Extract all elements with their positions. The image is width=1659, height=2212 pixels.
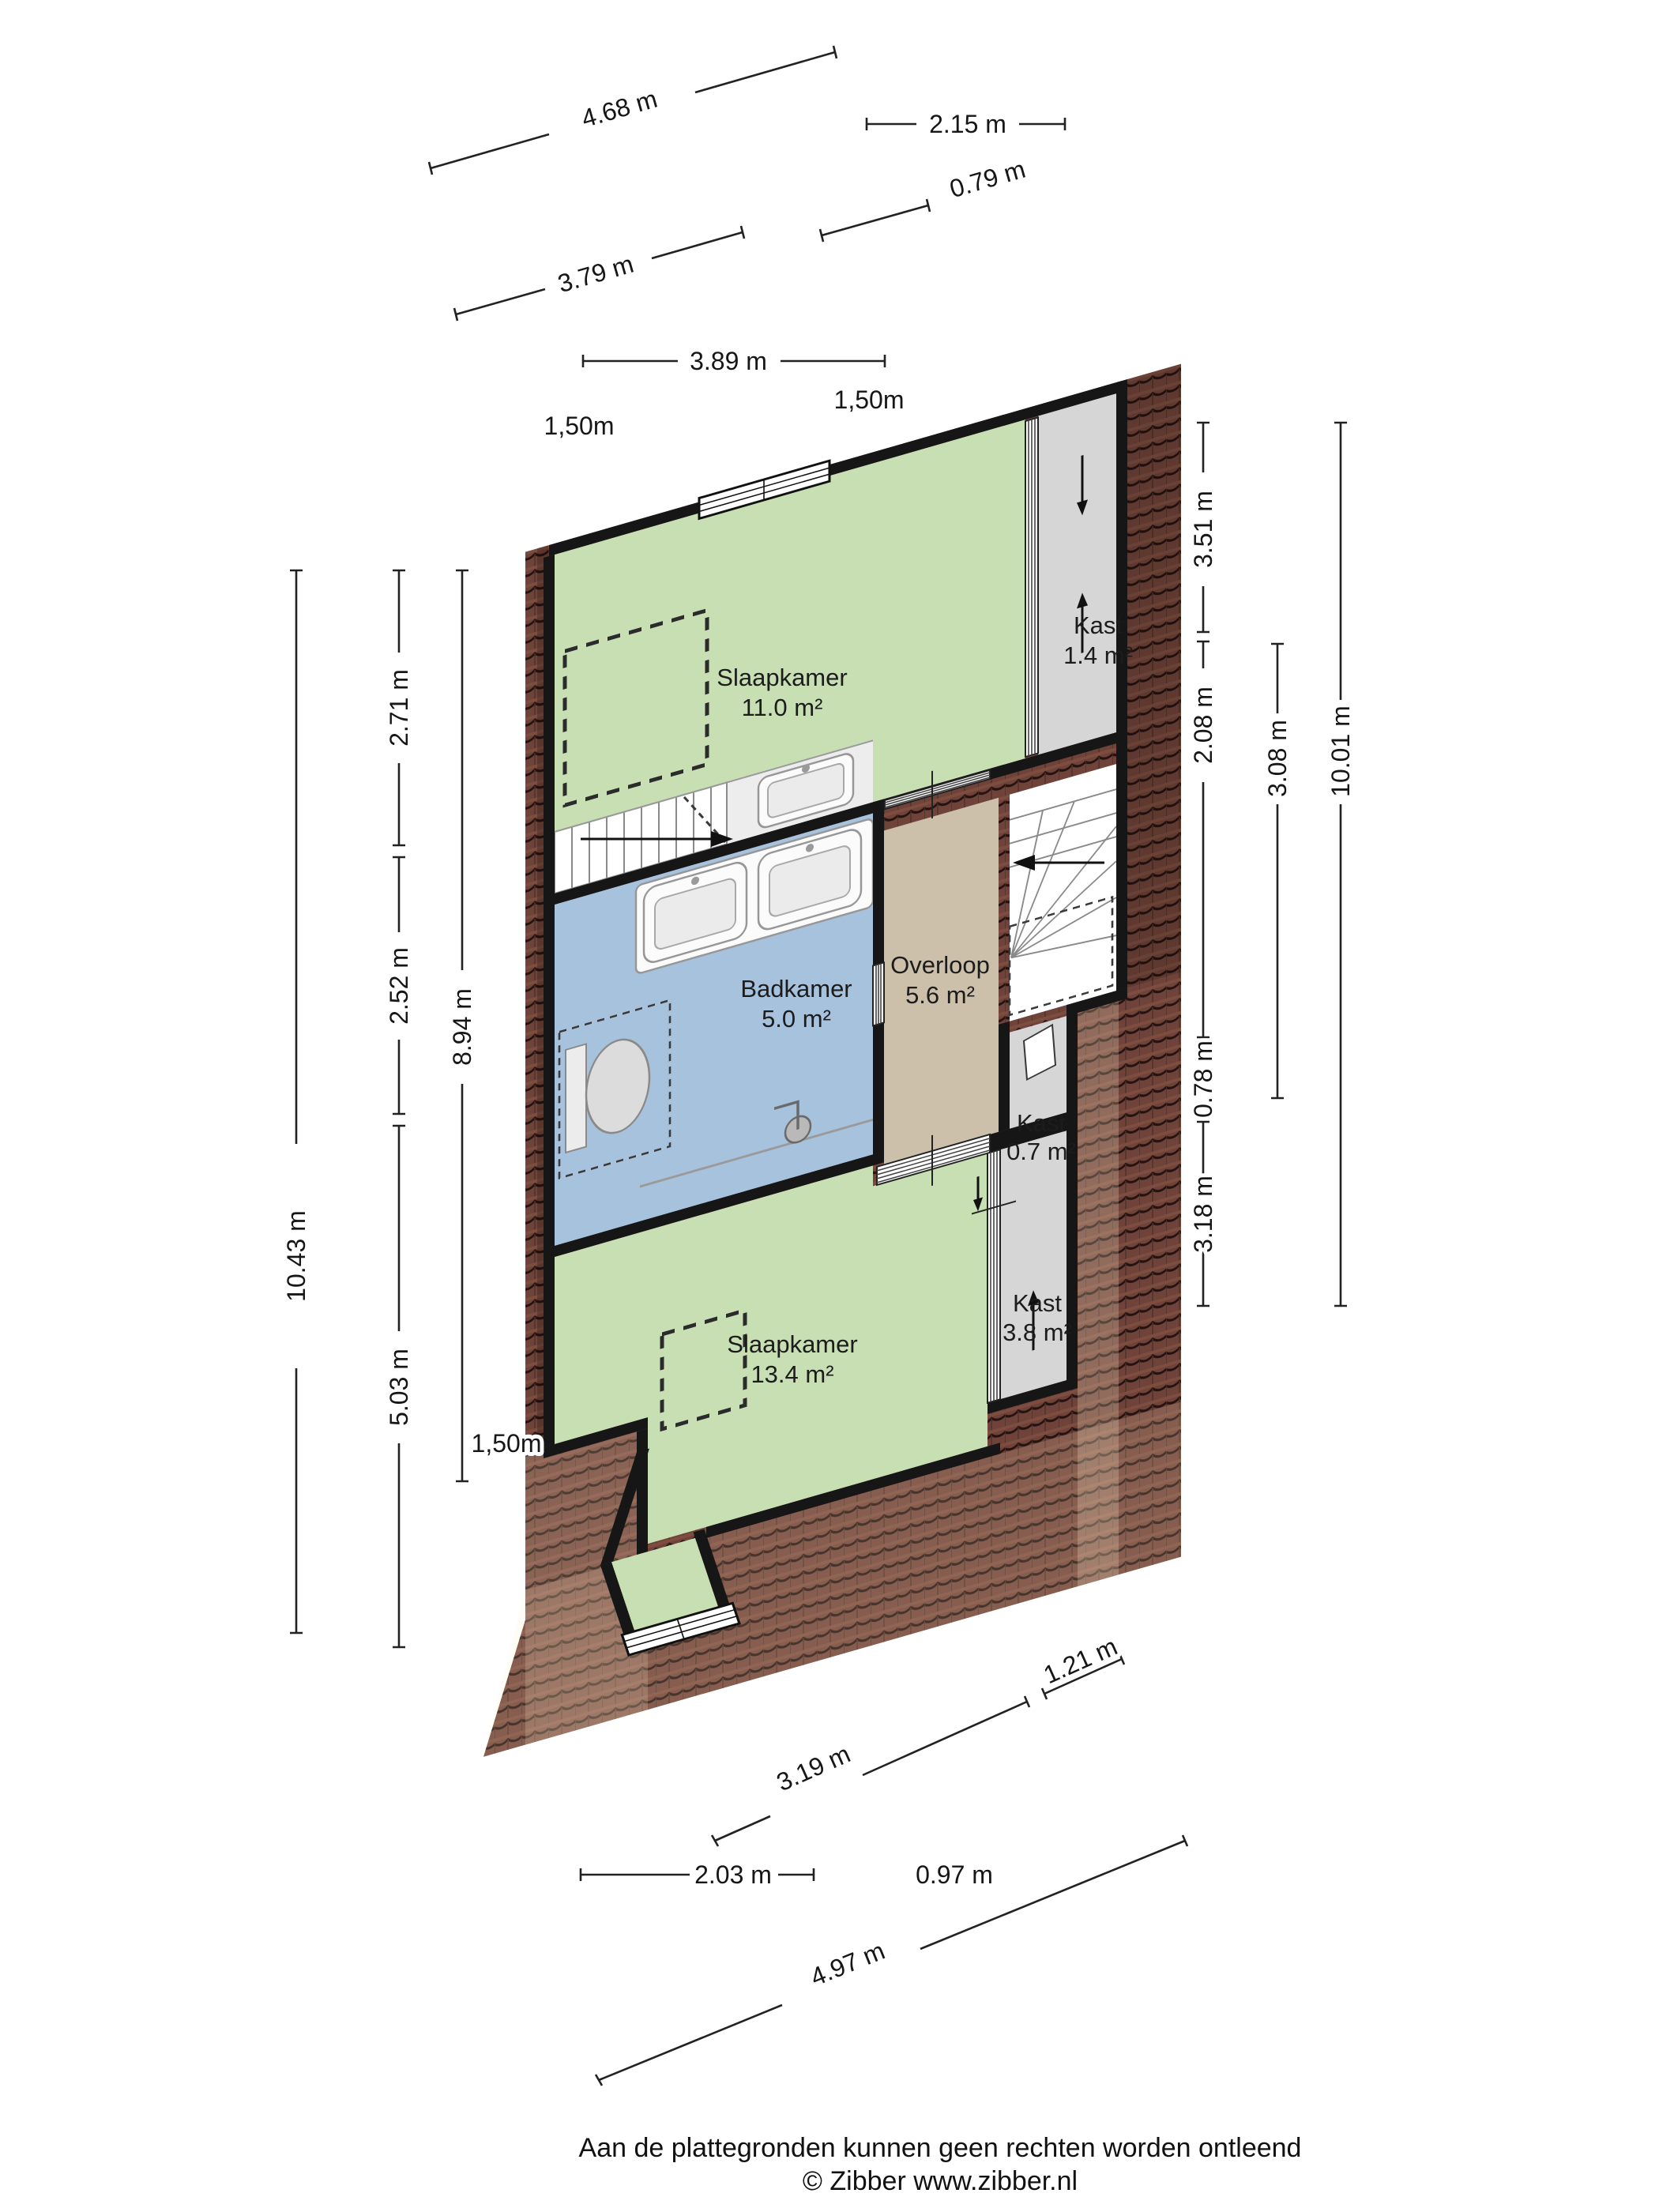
dim-right-3-51: 3.51 m <box>1189 491 1217 568</box>
dim-right-3-18: 3.18 m <box>1189 1176 1217 1253</box>
height-marker-left: 1,50m <box>544 412 615 440</box>
label-slaapkamer-1-area: 11.0 m² <box>742 694 823 721</box>
dim-right-2-08: 2.08 m <box>1189 687 1217 764</box>
roof-shade-right <box>1127 364 1181 987</box>
dim-right-3-08: 3.08 m <box>1263 720 1292 797</box>
dim-left-10-43: 10.43 m <box>282 1210 310 1302</box>
dim-right-0-78: 0.78 m <box>1189 1040 1217 1118</box>
label-badkamer-name: Badkamer <box>740 975 852 1003</box>
dimensions-right: 3.51 m 2.08 m 0.78 m 3.18 m 3.08 m 10.01… <box>1189 423 1355 1306</box>
wall-left-lower <box>637 1428 648 1555</box>
label-kast-2-area: 0.7 m² <box>1006 1138 1076 1165</box>
dimensions-top: 4.68 m 2.15 m 0.79 m 3.79 m 3.89 m <box>429 46 1065 375</box>
label-badkamer-area: 5.0 m² <box>762 1005 831 1033</box>
dim-top-4-68: 4.68 m <box>578 85 660 134</box>
door-kast-1 <box>1025 417 1038 757</box>
label-kast-1-area: 1.4 m² <box>1063 641 1133 669</box>
dim-top-3-79: 3.79 m <box>555 250 637 299</box>
label-kast-3-name: Kast <box>1013 1289 1062 1317</box>
room-kast-3 <box>1000 1130 1066 1399</box>
footer-disclaimer: Aan de plattegronden kunnen geen rechten… <box>579 2133 1302 2163</box>
footer-copyright: © Zibber www.zibber.nl <box>803 2166 1078 2196</box>
label-kast-1-name: Kast <box>1074 611 1123 639</box>
dim-top-0-79: 0.79 m <box>946 155 1029 204</box>
label-slaapkamer-2-area: 13.4 m² <box>750 1360 833 1388</box>
room-kast-1 <box>1038 393 1116 754</box>
dim-left-8-94: 8.94 m <box>448 988 476 1066</box>
dim-bottom-4-97: 4.97 m <box>807 1936 889 1992</box>
dim-left-2-52: 2.52 m <box>385 947 413 1025</box>
dim-top-3-89: 3.89 m <box>690 347 767 375</box>
height-marker-right: 1,50m <box>834 386 905 414</box>
height-marker-bottom-left: 1,50m <box>472 1429 542 1458</box>
floorplan-page: Slaapkamer 11.0 m² Kast 1.4 m² Badkamer … <box>0 0 1659 2212</box>
dim-left-2-71: 2.71 m <box>385 669 413 747</box>
building <box>483 360 1181 1757</box>
label-overloop-name: Overloop <box>890 951 990 979</box>
label-slaapkamer-1-name: Slaapkamer <box>717 664 847 691</box>
dim-left-5-03: 5.03 m <box>385 1349 413 1426</box>
dim-top-2-15: 2.15 m <box>929 110 1006 138</box>
label-slaapkamer-2-name: Slaapkamer <box>727 1330 857 1358</box>
dim-bottom-3-19: 3.19 m <box>773 1740 855 1797</box>
label-kast-3-area: 3.8 m² <box>1003 1319 1072 1346</box>
dim-bottom-0-97: 0.97 m <box>916 1860 993 1889</box>
door-badkamer <box>873 962 884 1025</box>
floorplan-canvas: Slaapkamer 11.0 m² Kast 1.4 m² Badkamer … <box>0 0 1659 2212</box>
dim-bottom-2-03: 2.03 m <box>694 1860 772 1889</box>
dim-bottom-1-21: 1.21 m <box>1040 1632 1122 1690</box>
dim-right-10-01: 10.01 m <box>1326 705 1355 797</box>
wall-right <box>1116 379 1127 991</box>
wall-kast2-left <box>999 1021 1010 1132</box>
wall-left <box>544 555 555 1447</box>
label-overloop-area: 5.6 m² <box>905 981 975 1009</box>
dimensions-left: 10.43 m 2.71 m 2.52 m 5.03 m 8.94 m <box>282 570 476 1647</box>
label-kast-2-name: Kast <box>1017 1109 1066 1137</box>
